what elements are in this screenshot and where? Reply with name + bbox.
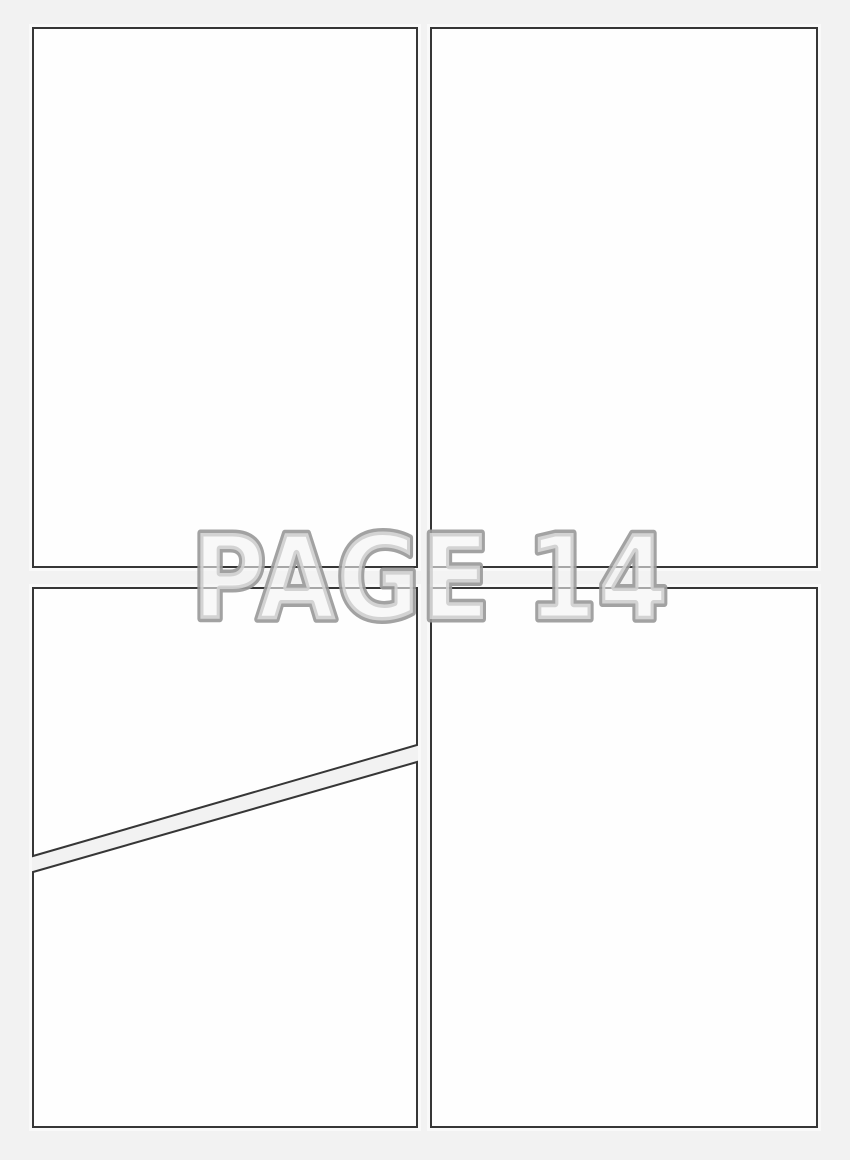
panel-top-left	[32, 27, 418, 568]
panel-top-right	[430, 27, 818, 568]
diagonal-split-panels	[32, 587, 418, 1128]
panel-bottom-left-group	[32, 587, 418, 1128]
panel-bottom-right	[430, 587, 818, 1128]
comic-page-template: PAGE 14	[0, 0, 850, 1160]
